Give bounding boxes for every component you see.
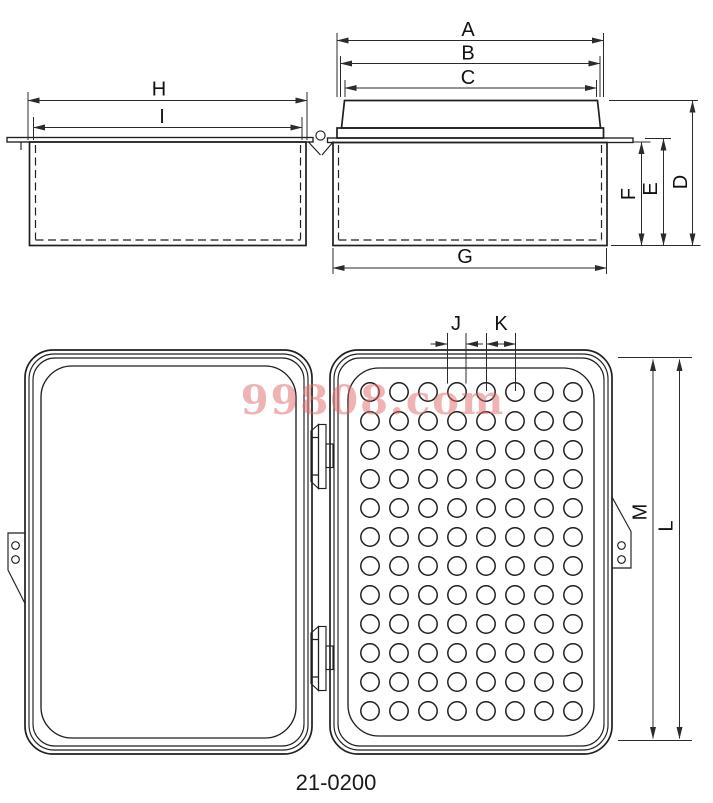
tray-hole-grid (361, 383, 582, 720)
lid-inner-wall-dashed (36, 145, 301, 240)
tray-hole (390, 441, 408, 459)
tray-hole (448, 644, 466, 662)
tray-hole (535, 441, 553, 459)
lid-latch-tab (8, 533, 25, 604)
tray-hole (535, 528, 553, 546)
dim-label-b: B (461, 43, 474, 65)
case-cap (342, 101, 601, 129)
tray-hole (419, 557, 437, 575)
dim-g: G (333, 246, 607, 274)
base-inner-wall-dashed (339, 145, 602, 240)
tray-hole (419, 470, 437, 488)
tray-hole (477, 615, 495, 633)
tray-hole (564, 673, 582, 691)
tray-hole (506, 615, 524, 633)
dim-c: C (345, 67, 597, 97)
dim-l: L (656, 360, 680, 739)
tray-hole (361, 586, 379, 604)
hinge-straps (308, 142, 334, 156)
tray-hole (390, 557, 408, 575)
latch-hole (12, 542, 20, 550)
tray-hole (390, 615, 408, 633)
tray-hole (506, 673, 524, 691)
tray-hole (535, 673, 553, 691)
tray-hole (564, 702, 582, 720)
watermark: 99808.com (241, 377, 505, 424)
hinge-pin (316, 131, 325, 140)
tray-hole (390, 673, 408, 691)
dim-label-l: L (656, 520, 678, 531)
tray-hole (477, 528, 495, 546)
tray-hole (419, 702, 437, 720)
tray-hole (535, 499, 553, 517)
tray-hole (448, 499, 466, 517)
latch-hole (618, 556, 626, 564)
tray-hole (419, 615, 437, 633)
tray-hole (419, 644, 437, 662)
lid-body (30, 142, 307, 246)
technical-drawing-page: H I A B (0, 0, 713, 803)
dim-d: D (670, 101, 693, 245)
base-latch-tab (612, 497, 631, 568)
tray-hole (390, 644, 408, 662)
tray-hole (361, 441, 379, 459)
dim-label-k: K (494, 313, 508, 335)
tray-hole (564, 557, 582, 575)
tray-hole (361, 528, 379, 546)
dim-label-c: C (461, 67, 475, 89)
tray-hole (390, 499, 408, 517)
tray-hole (361, 702, 379, 720)
tray-hole (477, 470, 495, 488)
tray-hole (419, 499, 437, 517)
tray-hole (390, 528, 408, 546)
tray-hole (564, 383, 582, 401)
tray-hole (506, 470, 524, 488)
part-number: 21-0200 (296, 770, 377, 795)
tray-hole (564, 528, 582, 546)
tray-hole (361, 615, 379, 633)
dim-i: I (34, 106, 303, 140)
tray-hole (419, 441, 437, 459)
tray-hole (448, 441, 466, 459)
tray-hole (564, 441, 582, 459)
dim-label-e: E (640, 182, 662, 195)
tray-hole (535, 383, 553, 401)
tray-hole (448, 702, 466, 720)
tray-hole (477, 673, 495, 691)
tray-hole (564, 470, 582, 488)
tray-hole (535, 586, 553, 604)
tray-hole (448, 557, 466, 575)
dim-label-d: D (670, 175, 692, 189)
tray-hole (506, 499, 524, 517)
tray-hole (564, 499, 582, 517)
dim-ext-mid (633, 139, 671, 143)
tray-hole (477, 644, 495, 662)
tray-hole (506, 528, 524, 546)
tray-hole (506, 412, 524, 430)
tray-hole (477, 586, 495, 604)
tray-hole (477, 499, 495, 517)
case-cap-step (337, 128, 604, 138)
dim-label-j: J (451, 313, 461, 335)
tray-hole (535, 702, 553, 720)
tray-hole (477, 702, 495, 720)
tray-hole (419, 586, 437, 604)
tray-hole (535, 644, 553, 662)
tray-hole (477, 441, 495, 459)
tray-hole (535, 557, 553, 575)
dim-j: J (431, 313, 484, 384)
tray-hole (448, 615, 466, 633)
top-view-base: A B C G (328, 19, 701, 274)
tray-hole (506, 586, 524, 604)
tray-hole (564, 644, 582, 662)
tray-hole (506, 702, 524, 720)
tray-hole (361, 557, 379, 575)
latch-hole (618, 542, 626, 550)
tray-hole (361, 673, 379, 691)
tray-hole (564, 586, 582, 604)
latch-hole (12, 556, 20, 564)
tray-hole (390, 586, 408, 604)
tray-hole (361, 499, 379, 517)
tray-hole (506, 441, 524, 459)
top-view-lid: H I (7, 79, 313, 246)
tray-hole (361, 470, 379, 488)
dim-f: F (618, 143, 642, 246)
tray-hole (448, 470, 466, 488)
top-view: H I A B (7, 19, 701, 274)
tray-hole (477, 557, 495, 575)
dim-label-a: A (461, 19, 475, 41)
tray-hole (564, 615, 582, 633)
dim-label-i: I (159, 106, 165, 128)
tray-hole (419, 673, 437, 691)
dim-label-g: G (457, 246, 473, 268)
tray-hole (448, 586, 466, 604)
dim-ext-ml (618, 358, 692, 741)
tray-hole (361, 644, 379, 662)
tray-hole (506, 557, 524, 575)
dim-m: M (630, 360, 654, 739)
tray-hole (535, 412, 553, 430)
tray-hole (448, 673, 466, 691)
tray-hole (419, 528, 437, 546)
tray-hole (390, 702, 408, 720)
dim-h: H (28, 79, 307, 141)
tray-hole (448, 528, 466, 546)
dim-label-f: F (618, 188, 640, 200)
dim-label-h: H (152, 79, 166, 101)
tray-hole (535, 470, 553, 488)
tray-hole (506, 644, 524, 662)
dim-label-m: M (630, 504, 652, 521)
base-body (333, 143, 607, 246)
tray-hole (564, 412, 582, 430)
case-technical-drawing: H I A B (0, 0, 713, 803)
dim-e: E (640, 139, 664, 245)
tray-hole (535, 615, 553, 633)
tray-hole (390, 470, 408, 488)
